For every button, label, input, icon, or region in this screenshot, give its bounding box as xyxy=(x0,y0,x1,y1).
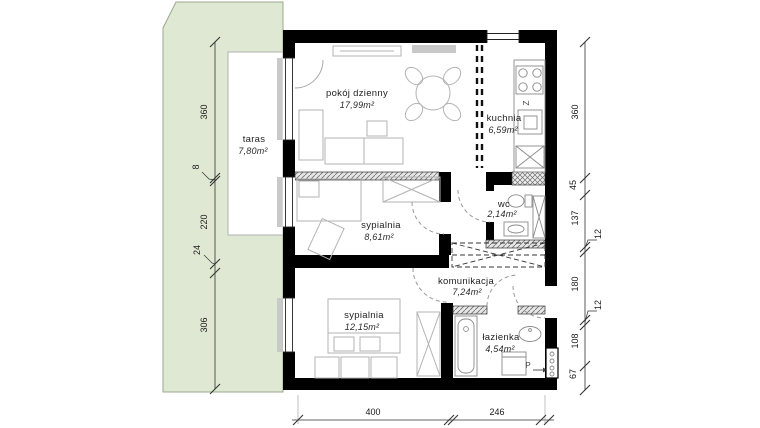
room-name-kitchen: kuchnia xyxy=(487,113,522,124)
room-area-kitchen: 6,59m² xyxy=(488,125,518,135)
dim-left-360: 360 xyxy=(199,104,209,119)
coffee-table xyxy=(367,121,387,136)
dim-left-24: 24 xyxy=(192,245,202,255)
top-wall-left xyxy=(283,30,487,43)
sofa-side xyxy=(299,110,323,160)
window-sill-outer xyxy=(277,58,282,140)
room-area-bedroom1: 8,61m² xyxy=(364,232,394,242)
dim-left-8: 8 xyxy=(191,164,201,169)
room-area-terrace: 7,80m² xyxy=(238,146,268,156)
interior-walls xyxy=(283,172,512,378)
door-balcony xyxy=(295,60,323,88)
bench xyxy=(371,357,397,378)
toilet xyxy=(508,195,524,207)
dim-right-108: 108 xyxy=(570,333,580,348)
room-name-bath: łazienka xyxy=(482,332,520,343)
bench xyxy=(315,357,339,378)
radiator xyxy=(412,45,456,53)
room-name-hall: komunikacja xyxy=(438,276,495,287)
bottom-wall xyxy=(283,378,557,390)
dim-bottom-400: 400 xyxy=(365,407,380,417)
wall-bath-top-left xyxy=(453,306,487,314)
dining-chairs xyxy=(402,64,464,124)
kitchen-counter-hatch xyxy=(512,172,545,185)
window-bedroom2 xyxy=(283,298,295,352)
room-name-living: pokój dzienny xyxy=(326,88,388,99)
room-area-living: 17,99m² xyxy=(340,100,375,110)
furniture-living xyxy=(299,45,464,164)
kitchen-dashed-partition xyxy=(477,45,482,168)
dim-right-45: 45 xyxy=(568,180,578,190)
terrace-zone xyxy=(163,2,283,392)
desk xyxy=(308,219,344,260)
dim-left-306: 306 xyxy=(199,317,209,332)
wall-wc-top-black xyxy=(486,172,512,185)
floor-plan-page: pokój dzienny 17,99m² kuchnia 6,59m² syp… xyxy=(0,0,760,428)
dim-right-360: 360 xyxy=(570,104,580,119)
window-sill-outer xyxy=(277,298,282,352)
floor-plan-svg: pokój dzienny 17,99m² kuchnia 6,59m² syp… xyxy=(0,0,760,428)
door-wc xyxy=(458,190,490,222)
dim-right-12a: 12 xyxy=(593,229,603,239)
wall-wc-left xyxy=(486,222,494,241)
dimension-bottom xyxy=(292,395,554,425)
room-area-bath: 4,54m² xyxy=(485,344,515,354)
dim-right-137: 137 xyxy=(570,210,580,225)
dim-right-180: 180 xyxy=(570,276,580,291)
bed-single xyxy=(297,179,361,221)
room-name-bedroom2: sypialnia xyxy=(344,310,384,321)
pillow xyxy=(299,181,319,197)
room-area-hall: 7,24m² xyxy=(452,287,482,297)
washer xyxy=(502,352,526,375)
window-bedroom1 xyxy=(283,177,295,227)
wall-bedroom1-pier xyxy=(439,234,451,255)
dim-right-67: 67 xyxy=(568,369,578,379)
dim-left-220: 220 xyxy=(199,214,209,229)
pillow xyxy=(334,337,354,351)
left-wall-seg xyxy=(283,30,295,58)
pillow xyxy=(360,337,380,351)
wall-bath-top-right xyxy=(518,306,545,314)
wall-bedroom1-pier xyxy=(439,172,451,202)
sink-symbol: Z xyxy=(522,100,531,105)
room-name-terrace: taras xyxy=(243,134,266,145)
right-wall-seg xyxy=(545,43,557,286)
room-area-wc: 2,14m² xyxy=(486,209,517,219)
washer-symbol: P xyxy=(525,361,530,370)
left-wall-seg xyxy=(283,140,295,177)
dim-leader xyxy=(585,240,597,248)
wall-hall-bedrooms xyxy=(283,255,449,268)
fixture-symbols: Z P xyxy=(522,100,531,370)
wall-wc-left xyxy=(486,185,494,191)
top-wall-right xyxy=(519,30,557,43)
window-kitchen xyxy=(487,30,519,43)
door-bedroom1 xyxy=(412,202,444,234)
dim-leader xyxy=(585,311,597,322)
dim-bottom-246: 246 xyxy=(489,407,504,417)
window-living xyxy=(283,58,295,140)
dim-right-12b: 12 xyxy=(593,300,603,310)
oven xyxy=(518,110,542,134)
furniture-bedroom1 xyxy=(297,177,440,259)
windows xyxy=(283,30,519,352)
wall-wc-bottom xyxy=(486,240,545,248)
bench xyxy=(341,357,369,378)
wall-bath-left xyxy=(441,303,453,378)
dimension-right xyxy=(580,37,597,395)
room-area-bedroom2: 12,15m² xyxy=(345,322,380,332)
room-name-bedroom1: sypialnia xyxy=(361,220,401,231)
window-sill-outer xyxy=(277,177,282,227)
